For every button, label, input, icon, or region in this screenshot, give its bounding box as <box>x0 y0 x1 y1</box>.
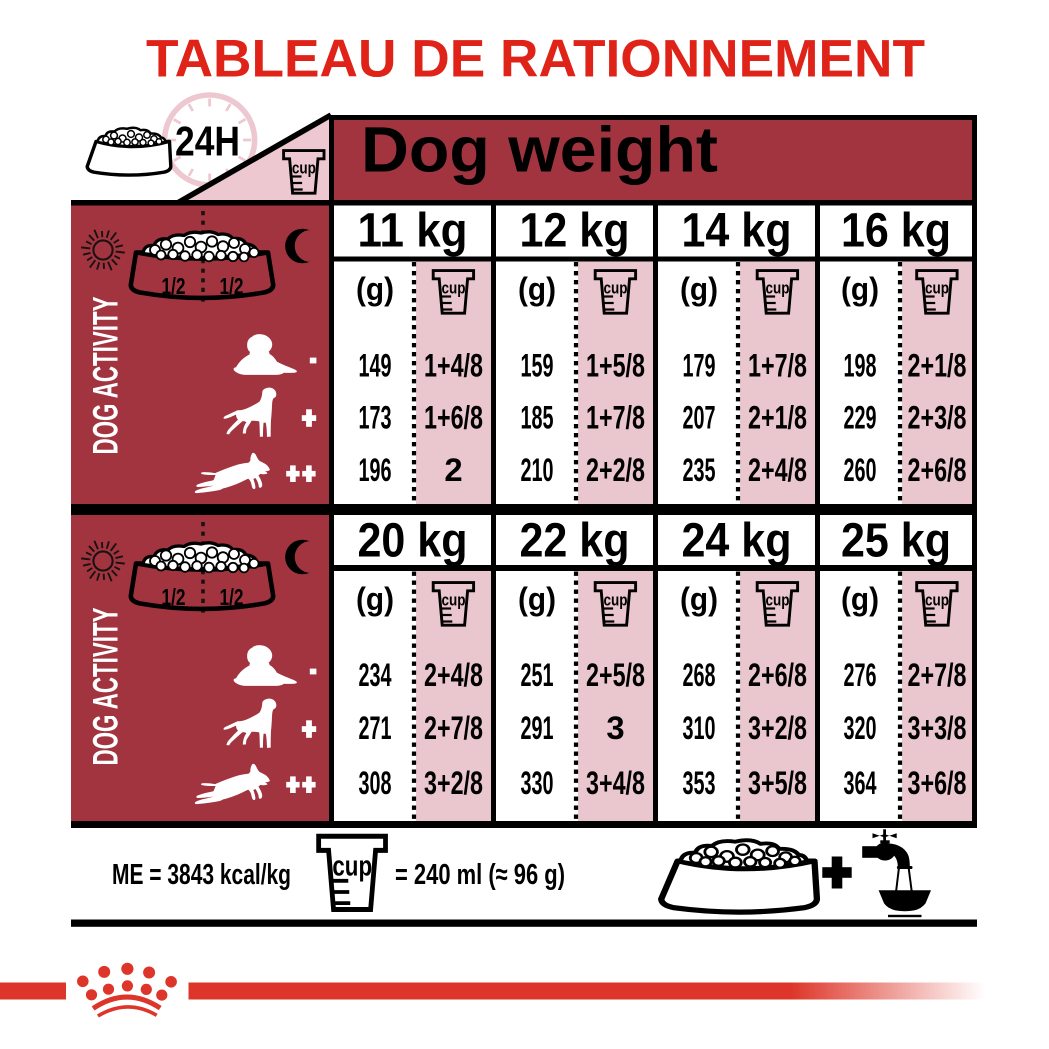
svg-text:268: 268 <box>683 656 716 693</box>
svg-text:11 kg: 11 kg <box>358 205 468 258</box>
svg-text:229: 229 <box>844 399 877 436</box>
svg-text:198: 198 <box>844 347 877 384</box>
svg-text:2+5/8: 2+5/8 <box>586 656 645 693</box>
svg-text:1+7/8: 1+7/8 <box>586 399 645 436</box>
svg-text:22 kg: 22 kg <box>520 515 630 568</box>
svg-text:3+6/8: 3+6/8 <box>908 764 967 801</box>
svg-text:2+6/8: 2+6/8 <box>748 656 807 693</box>
svg-text:20 kg: 20 kg <box>358 515 468 568</box>
svg-text:159: 159 <box>521 347 554 384</box>
svg-text:1+5/8: 1+5/8 <box>586 347 645 384</box>
svg-text:179: 179 <box>683 347 716 384</box>
svg-text:2+2/8: 2+2/8 <box>586 451 645 488</box>
svg-text:271: 271 <box>359 709 392 746</box>
svg-text:16 kg: 16 kg <box>841 205 951 258</box>
svg-text:2+7/8: 2+7/8 <box>424 709 483 746</box>
svg-text:24 kg: 24 kg <box>682 515 792 568</box>
svg-text:1+4/8: 1+4/8 <box>424 347 483 384</box>
svg-text:3+2/8: 3+2/8 <box>748 709 807 746</box>
svg-text:149: 149 <box>359 347 392 384</box>
svg-text:(g): (g) <box>680 581 718 617</box>
svg-text:(g): (g) <box>518 581 556 617</box>
svg-text:2+4/8: 2+4/8 <box>424 656 483 693</box>
svg-text:= 240 ml (≈ 96 g): = 240 ml (≈ 96 g) <box>395 859 565 891</box>
svg-text:1+7/8: 1+7/8 <box>748 347 807 384</box>
svg-text:12 kg: 12 kg <box>520 205 630 258</box>
svg-text:(g): (g) <box>680 271 718 307</box>
svg-text:2+7/8: 2+7/8 <box>908 656 967 693</box>
svg-text:2+6/8: 2+6/8 <box>908 451 967 488</box>
svg-text:3+2/8: 3+2/8 <box>424 764 483 801</box>
svg-text:310: 310 <box>683 709 716 746</box>
svg-text:25 kg: 25 kg <box>841 515 951 568</box>
svg-text:291: 291 <box>521 709 554 746</box>
svg-text:196: 196 <box>359 451 392 488</box>
svg-text:320: 320 <box>844 709 877 746</box>
svg-text:ME = 3843 kcal/kg: ME = 3843 kcal/kg <box>112 859 291 891</box>
svg-text:DOG ACTIVITY: DOG ACTIVITY <box>87 297 126 455</box>
svg-text:3: 3 <box>606 709 624 746</box>
svg-text:3+4/8: 3+4/8 <box>586 764 645 801</box>
svg-text:364: 364 <box>844 764 877 801</box>
svg-text:185: 185 <box>521 399 554 436</box>
svg-text:(g): (g) <box>356 271 394 307</box>
svg-text:3+3/8: 3+3/8 <box>908 709 967 746</box>
svg-text:234: 234 <box>359 656 392 693</box>
svg-text:(g): (g) <box>356 581 394 617</box>
svg-text:330: 330 <box>521 764 554 801</box>
svg-text:2+4/8: 2+4/8 <box>748 451 807 488</box>
svg-text:210: 210 <box>521 451 554 488</box>
svg-text:1+6/8: 1+6/8 <box>424 399 483 436</box>
svg-text:TABLEAU DE RATIONNEMENT: TABLEAU DE RATIONNEMENT <box>146 30 925 89</box>
svg-text:173: 173 <box>359 399 392 436</box>
svg-text:251: 251 <box>521 656 554 693</box>
svg-text:Dog weight: Dog weight <box>361 114 718 186</box>
svg-text:(g): (g) <box>518 271 556 307</box>
svg-text:2+3/8: 2+3/8 <box>908 399 967 436</box>
svg-text:3+5/8: 3+5/8 <box>748 764 807 801</box>
svg-text:(g): (g) <box>841 581 879 617</box>
svg-text:353: 353 <box>683 764 716 801</box>
svg-text:(g): (g) <box>841 271 879 307</box>
svg-text:207: 207 <box>683 399 716 436</box>
svg-text:308: 308 <box>359 764 392 801</box>
svg-text:2: 2 <box>444 451 462 488</box>
svg-text:2+1/8: 2+1/8 <box>748 399 807 436</box>
svg-text:260: 260 <box>844 451 877 488</box>
svg-text:2+1/8: 2+1/8 <box>908 347 967 384</box>
svg-text:DOG ACTIVITY: DOG ACTIVITY <box>87 608 126 766</box>
svg-text:235: 235 <box>683 451 716 488</box>
svg-text:276: 276 <box>844 656 877 693</box>
svg-text:14 kg: 14 kg <box>682 205 792 258</box>
svg-text:24H: 24H <box>175 118 240 165</box>
